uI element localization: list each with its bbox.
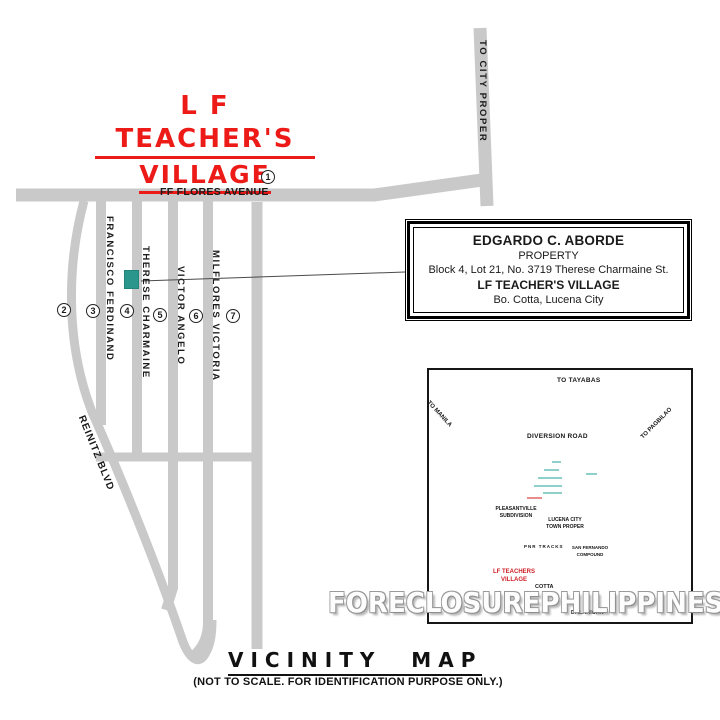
watermark: FORECLOSUREPHILIPPINES.COM (328, 586, 720, 619)
street-number-6: 6 (189, 309, 203, 323)
inset-lucena-label: LUCENA CITY TOWN PROPER (542, 517, 588, 532)
inset-lucena-line1: LUCENA CITY (542, 517, 588, 524)
vicinity-map-title: VICINITY MAP (228, 648, 468, 676)
street-milflores-victoria (190, 201, 208, 658)
vicinity-map-page: L F TEACHER'S VILLAGE FF FLORES AVENUE T… (0, 0, 720, 720)
street-number-3: 3 (86, 304, 100, 318)
street-number-1: 1 (261, 170, 275, 184)
property-village: LF TEACHER'S VILLAGE (418, 278, 679, 292)
street-number-4: 4 (120, 304, 134, 318)
inset-diversion-road-label: DIVERSION ROAD (527, 433, 588, 440)
inset-lf-teachers-village-label: LF TEACHERS VILLAGE (492, 568, 536, 585)
ff-flores-avenue-label: FF FLORES AVENUE (160, 186, 269, 198)
to-city-proper-label: TO CITY PROPER (477, 40, 488, 142)
inset-tiny-red-label (527, 497, 542, 499)
village-title: L F TEACHER'S VILLAGE (95, 90, 315, 194)
street-number-7: 7 (226, 309, 240, 323)
inset-pleasantville-line2: SUBDIVISION (494, 513, 538, 520)
inset-tiny-teal-label (534, 485, 562, 487)
inset-to-tayabas-label: TO TAYABAS (557, 377, 600, 384)
inset-san-fernando-label: SAN FERNANDO COMPOUND (567, 545, 613, 558)
inset-lucena-line2: TOWN PROPER (542, 524, 588, 531)
inset-lf-line1: LF TEACHERS (492, 568, 536, 576)
inset-tiny-teal-label (538, 477, 562, 479)
inset-san-fernando-line1: SAN FERNANDO (567, 545, 613, 552)
property-lot-marker (124, 270, 139, 289)
street-label-therese-charmaine: THERESE CHARMAINE (140, 246, 151, 379)
street-victor-angelo (166, 201, 173, 610)
street-label-milflores-victoria: MILFLORES VICTORIA (210, 250, 221, 382)
inset-tiny-teal-label (544, 469, 559, 471)
inset-tiny-teal-label (586, 473, 597, 475)
inset-san-fernando-line2: COMPOUND (567, 552, 613, 559)
vicinity-map-note: (NOT TO SCALE. FOR IDENTIFICATION PURPOS… (168, 676, 528, 688)
property-info-box: EDGARDO C. ABORDE PROPERTY Block 4, Lot … (405, 219, 692, 321)
property-city: Bo. Cotta, Lucena City (418, 294, 679, 306)
inset-lf-line2: VILLAGE (492, 576, 536, 584)
village-title-line1: L F TEACHER'S (95, 90, 315, 159)
street-label-francisco-ferdinand: FRANCISCO FERDINAND (104, 216, 115, 361)
property-word: PROPERTY (418, 250, 679, 262)
info-box-content: EDGARDO C. ABORDE PROPERTY Block 4, Lot … (413, 227, 684, 313)
inset-tiny-teal-label (552, 461, 561, 463)
inset-tiny-teal-label (543, 492, 562, 494)
inset-pnr-tracks-label: PNR TRACKS (524, 544, 564, 549)
inset-pleasantville-line1: PLEASANTVILLE (494, 506, 538, 513)
owner-name: EDGARDO C. ABORDE (418, 233, 679, 248)
street-number-2: 2 (57, 303, 71, 317)
vicinity-map-title-text: VICINITY MAP (228, 648, 482, 676)
inset-pleasantville-label: PLEASANTVILLE SUBDIVISION (494, 506, 538, 521)
street-number-5: 5 (153, 308, 167, 322)
property-address: Block 4, Lot 21, No. 3719 Therese Charma… (418, 264, 679, 276)
street-label-victor-angelo: VICTOR ANGELO (175, 266, 186, 365)
info-box-mid-border: EDGARDO C. ABORDE PROPERTY Block 4, Lot … (407, 221, 690, 319)
